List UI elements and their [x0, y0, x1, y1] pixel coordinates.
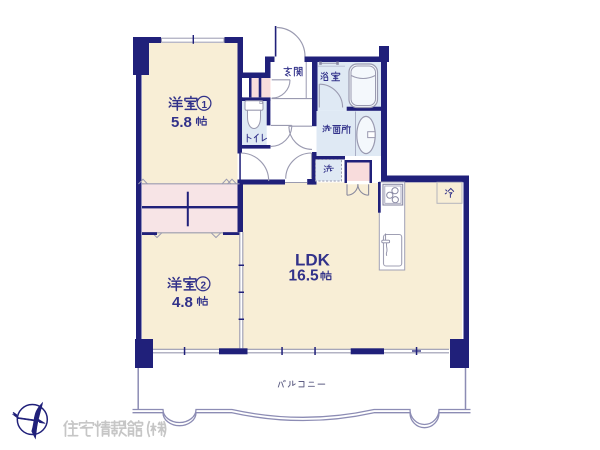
svg-text:1: 1	[202, 100, 208, 111]
svg-text:4.8: 4.8	[172, 294, 193, 311]
svg-text:5.8: 5.8	[171, 114, 192, 131]
svg-text:2: 2	[201, 280, 207, 291]
svg-text:16.5: 16.5	[289, 268, 320, 285]
